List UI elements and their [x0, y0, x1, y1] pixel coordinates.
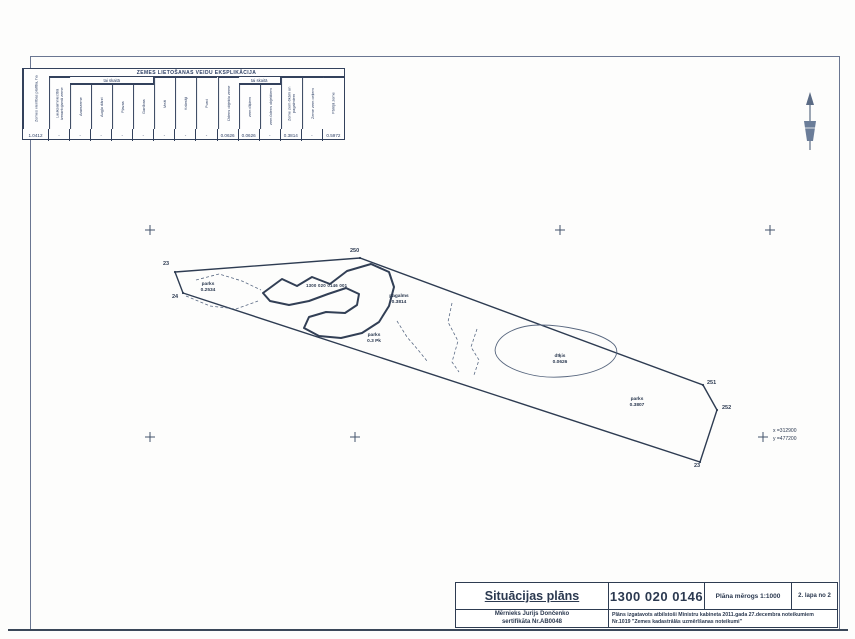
surveyor-name: Mērnieks Jurijs Dončenko: [495, 611, 569, 619]
north-arrow-icon: [804, 92, 816, 150]
table-title: ZEMES LIETOŠANAS VEIDU EKSPLIKĀCIJA: [49, 69, 344, 77]
plan-title: Situācijas plāns: [485, 589, 579, 603]
coord-x: x =312900: [773, 428, 797, 434]
building-cadastre-label: 1300 020 0146 001: [306, 283, 347, 288]
boundary-point-label: 250: [350, 248, 359, 254]
col-label: zem ūdens objektiem: [260, 84, 281, 129]
regulation-line-1: Plāns izgatavots atbilstoši Ministru kab…: [612, 612, 814, 619]
area-label-parks-3: parks 0.3807: [615, 397, 659, 409]
area-label-parks-1: parks 0.2534: [186, 282, 230, 294]
area-value: 0.2534: [201, 288, 216, 293]
regulation-line-2: Nr.1019 "Zemes kadastrālās uzmērīšanas n…: [612, 619, 742, 626]
area-value: 0.0626: [553, 360, 568, 365]
col-label: Zeme zem ceļiem: [302, 77, 323, 129]
plan-scale: Plāna mērogs 1:1000: [716, 593, 781, 600]
table-value: -: [196, 129, 217, 141]
boundary-point-label: 23: [163, 261, 169, 267]
pond-outline: [495, 325, 617, 377]
col-label: Augļu dārzi: [91, 84, 112, 129]
col-label: zem dīķiem: [239, 84, 260, 129]
area-name: parks: [202, 282, 215, 287]
col-label: Pārējā zeme: [323, 77, 344, 129]
boundary-point-label: 23: [694, 463, 700, 469]
table-value: -: [49, 129, 70, 141]
area-value: 0.3814: [392, 300, 407, 305]
area-label-pagalms: pagalms 0.3814: [377, 294, 421, 306]
page-number: 2. lapa no 2: [798, 593, 831, 599]
coord-y: y =477200: [773, 436, 797, 442]
area-name: pagalms: [389, 294, 408, 299]
surveyor-info: Mērnieks Jurijs Dončenko sertifikāta Nr.…: [456, 609, 608, 627]
table-value: 0.0626: [218, 129, 239, 141]
title-block: Situācijas plāns 1300 020 0146 Plāna mēr…: [455, 582, 838, 628]
table-value: 0.3814: [281, 129, 302, 141]
col-label: Aramzeme: [70, 84, 91, 129]
col-label: Lauksaimniecībā izmantojamā zeme: [49, 77, 70, 129]
table-value: -: [260, 129, 281, 141]
boundary-point-label: 251: [707, 380, 716, 386]
table-value: -: [154, 129, 175, 141]
col-label: Ūdens objektu zeme: [218, 77, 239, 129]
explication-table: Zemes vienības platība, ha ZEMES LIETOŠA…: [22, 68, 345, 140]
table-value: -: [302, 129, 323, 141]
table-value: 0.0626: [239, 129, 260, 141]
coordinate-annotation: x =312900 y =477200: [773, 428, 797, 443]
col-label: Purvi: [196, 77, 217, 129]
boundary-point-label: 24: [172, 294, 178, 300]
cadastre-number: 1300 020 0146: [610, 589, 703, 604]
col-label: Pļavas: [112, 84, 133, 129]
area-value: 0.3 Pk: [367, 339, 381, 344]
table-value: 1.0412: [23, 129, 49, 141]
table-value: -: [175, 129, 196, 141]
regulation-note: Plāns izgatavots atbilstoši Ministru kab…: [608, 609, 837, 627]
table-value: -: [91, 129, 112, 141]
col-area-label: Zemes vienības platība, ha: [23, 69, 49, 129]
area-label-dikis: dīķis 0.0626: [538, 354, 582, 366]
parcel-boundary: [175, 258, 717, 462]
area-label-parks-2: parks 0.3 Pk: [352, 333, 396, 345]
area-name: dīķis: [555, 354, 566, 359]
table-value: -: [133, 129, 154, 141]
area-name: parks: [368, 333, 381, 338]
table-value: -: [112, 129, 133, 141]
col-label: Zeme zem ēkām un pagalmiem: [281, 77, 302, 129]
area-value: 0.3807: [630, 403, 645, 408]
table-value: -: [70, 129, 91, 141]
col-label: Ganības: [133, 84, 154, 129]
grid-crosses: [145, 225, 775, 442]
scanned-survey-plan-page: { "explication_table": { "title": "ZEMES…: [0, 0, 855, 639]
table-value: 0.5972: [323, 129, 344, 141]
building-yard-outline: [263, 264, 394, 338]
area-name: parks: [631, 397, 644, 402]
col-label: Krūmāji: [175, 77, 196, 129]
surveyor-certificate: sertifikāta Nr.AB0048: [502, 619, 562, 627]
boundary-point-label: 252: [722, 405, 731, 411]
subheader-tai-skaita: tai skaitā: [239, 77, 281, 84]
col-label: Meži: [154, 77, 175, 129]
subheader-tai-skaita: tai skaitā: [70, 77, 154, 84]
